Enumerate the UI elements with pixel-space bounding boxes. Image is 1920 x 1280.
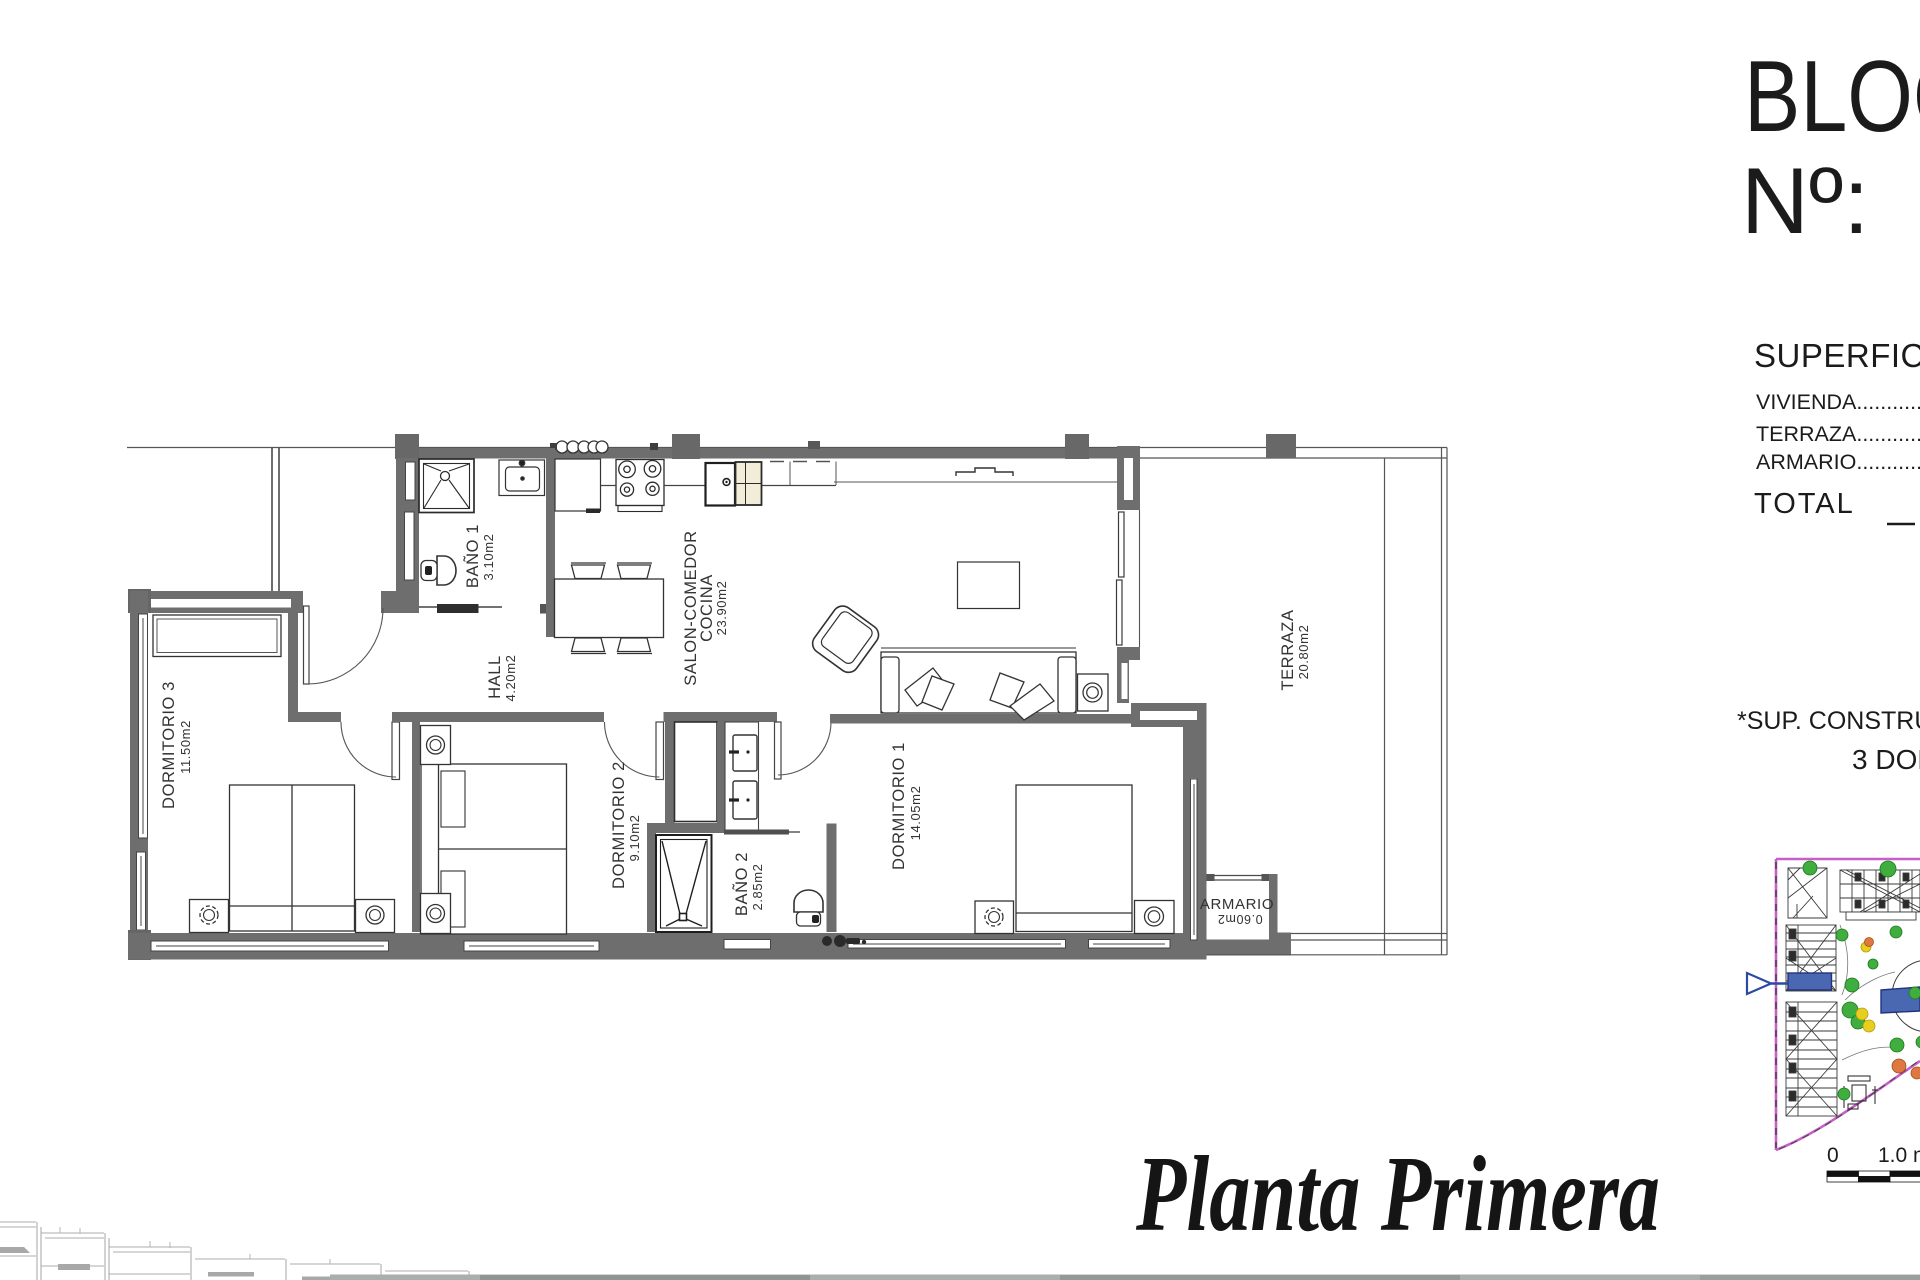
svg-text:14.05m2: 14.05m2 [908,786,923,841]
svg-text:3.10m2: 3.10m2 [481,534,496,581]
svg-text:9.10m2: 9.10m2 [627,815,642,862]
svg-text:11.50m2: 11.50m2 [178,720,193,774]
svg-text:BAÑO 1: BAÑO 1 [462,524,482,588]
svg-text:*SUP. CONSTRUIDA C: *SUP. CONSTRUIDA C [1737,707,1920,735]
svg-text:2.85m2: 2.85m2 [750,864,765,911]
svg-text:ARMARIO: ARMARIO [1200,896,1274,913]
svg-text:1.0 m: 1.0 m [1878,1144,1920,1167]
svg-text:23.90m2: 23.90m2 [714,581,729,636]
svg-text:Planta Primera: Planta Primera [1135,1135,1660,1254]
svg-text:0: 0 [1827,1144,1839,1167]
svg-text:ARMARIO.....................: ARMARIO..................... [1756,450,1920,474]
svg-text:DORMITORIO 1: DORMITORIO 1 [890,742,908,870]
svg-text:SUPERFICIES: SUPERFICIES [1754,337,1920,374]
svg-text:3 DORM: 3 DORM [1852,744,1920,775]
svg-text:TERRAZA: TERRAZA [1279,609,1297,690]
svg-text:VIVIENDA....................: VIVIENDA.................... [1756,390,1920,414]
svg-text:4.20m2: 4.20m2 [503,655,518,702]
svg-text:HALL: HALL [486,655,504,699]
svg-text:20.80m2: 20.80m2 [1296,625,1311,680]
svg-text:DORMITORIO 3: DORMITORIO 3 [160,681,178,809]
svg-text:TOTAL: TOTAL [1754,488,1855,520]
svg-text:BAÑO 2: BAÑO 2 [731,852,751,916]
svg-text:TERRAZA.....................: TERRAZA..................... [1756,422,1920,446]
svg-text:DORMITORIO 2: DORMITORIO 2 [610,761,628,889]
svg-text:Nº:: Nº: [1741,148,1869,253]
svg-text:BLOQUE: BLOQUE [1744,41,1920,153]
svg-text:0.60m2: 0.60m2 [1217,912,1262,926]
